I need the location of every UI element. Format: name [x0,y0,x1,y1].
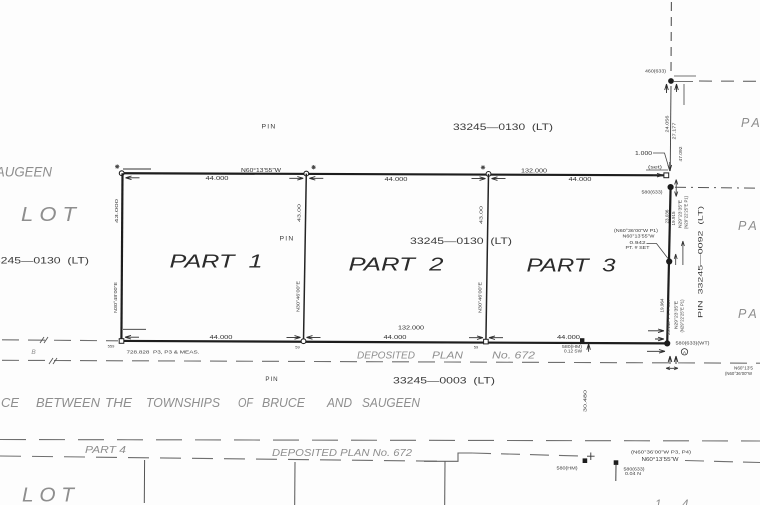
svg-text:44.000: 44.000 [210,335,233,341]
svg-text:BRUCE: BRUCE [262,395,305,410]
svg-text:460(633): 460(633) [645,69,667,74]
svg-text:PAR: PAR [738,219,760,233]
svg-text:59: 59 [295,344,300,349]
svg-text:L O T: L O T [21,203,78,226]
svg-text:4: 4 [682,499,688,505]
svg-text:PART 4: PART 4 [85,444,126,456]
svg-text:47.092: 47.092 [678,146,683,161]
svg-text:PA: PA [741,116,760,130]
svg-text:(N60°36’00”W P1): (N60°36’00”W P1) [614,228,659,233]
svg-text:0.12 SW: 0.12 SW [564,349,583,354]
svg-text:PAR: PAR [738,307,760,321]
svg-text:44.000: 44.000 [206,176,229,182]
svg-text:132.000: 132.000 [398,326,424,332]
svg-text:43.00: 43.00 [296,204,302,222]
svg-text:N60°13’55”W: N60°13’55”W [241,168,281,174]
svg-text:27.177: 27.177 [672,122,677,140]
svg-text:44.000: 44.000 [557,335,580,341]
svg-text:B: B [31,349,36,356]
svg-text:PART 1: PART 1 [170,252,263,272]
svg-text:A: A [683,350,686,355]
svg-text:PIN: PIN [280,236,295,243]
svg-text:N60°13’55”W: N60°13’55”W [623,234,656,239]
svg-text:(N60°36’00”W P3, P4): (N60°36’00”W P3, P4) [631,450,692,455]
svg-text:N30°48’00”E: N30°48’00”E [113,282,119,313]
svg-text:PT. # SET: PT. # SET [626,245,650,250]
svg-text:(N29°22’25”E P1): (N29°22’25”E P1) [684,195,689,229]
svg-text:19.915: 19.915 [671,211,676,225]
svg-text:559: 559 [108,343,115,348]
svg-text:BETWEEN: BETWEEN [36,395,101,410]
svg-text:N60°13’5: N60°13’5 [734,366,753,371]
svg-text:N30°46’00”E: N30°46’00”E [478,282,484,313]
svg-text:PIN: PIN [265,376,278,383]
svg-text:23.036: 23.036 [665,209,670,223]
svg-text:59: 59 [474,344,479,349]
svg-text:132.000: 132.000 [521,168,547,174]
svg-text:580(HM): 580(HM) [557,465,579,470]
svg-text:OF: OF [238,395,254,410]
svg-text:SAUGEEN: SAUGEEN [362,395,421,410]
svg-text:728.828 P3, P3 & MEAS.: 728.828 P3, P3 & MEAS. [127,350,200,355]
svg-text:PART 2: PART 2 [349,255,444,275]
svg-text:PIN: PIN [262,124,277,131]
svg-text:(set): (set) [648,165,663,170]
svg-text:(N60°36’00”W: (N60°36’00”W [725,371,753,376]
svg-text:N60°13’55”W: N60°13’55”W [642,457,679,463]
svg-text:DEPOSITED: DEPOSITED [357,350,416,361]
svg-text:SAUGEEN: SAUGEEN [0,164,53,180]
svg-text:44.000: 44.000 [384,335,407,341]
svg-text:PART 3: PART 3 [527,256,616,276]
svg-text:33245—0130 (LT): 33245—0130 (LT) [0,256,89,266]
svg-text:L O T: L O T [22,485,76,505]
svg-text:23.146 PT. # SET: 23.146 PT. # SET [666,299,671,335]
svg-text:580(633)(WT): 580(633)(WT) [676,341,711,346]
svg-text:44.000: 44.000 [385,177,408,183]
svg-text:N29°23’35”E: N29°23’35”E [677,200,682,228]
svg-text:PLAN: PLAN [432,350,464,361]
svg-text:43.00: 43.00 [479,206,485,224]
svg-text:TOWNSHIPS: TOWNSHIPS [146,395,220,410]
svg-text:44.000: 44.000 [569,177,592,183]
svg-text:(N29°22’25”E P1): (N29°22’25”E P1) [680,299,685,333]
svg-text:33245—0130 (LT): 33245—0130 (LT) [453,122,553,132]
svg-text:N29°23’35”E: N29°23’35”E [673,301,678,329]
svg-text:19.964: 19.964 [659,298,664,312]
svg-text:33245—0003 (LT): 33245—0003 (LT) [393,376,495,386]
svg-text:PIN 33245—0092 (LT): PIN 33245—0092 (LT) [698,206,705,318]
svg-text:1: 1 [655,499,661,505]
svg-text:No. 672: No. 672 [492,350,535,361]
svg-text:N30°46’00”E: N30°46’00”E [296,281,302,312]
svg-text:AND: AND [326,395,352,410]
svg-text:0.04 N: 0.04 N [625,471,641,476]
svg-text:33245—0130 (LT): 33245—0130 (LT) [410,236,512,246]
svg-text:30.480: 30.480 [583,390,589,412]
svg-text:1.000: 1.000 [635,151,652,157]
svg-text:43.000: 43.000 [114,198,120,223]
svg-text:24.056: 24.056 [665,115,670,133]
svg-text:DEPOSITED PLAN No. 672: DEPOSITED PLAN No. 672 [272,448,412,459]
svg-text:580(633): 580(633) [642,189,664,194]
svg-text:CE: CE [1,395,19,410]
svg-text:THE: THE [105,395,132,410]
